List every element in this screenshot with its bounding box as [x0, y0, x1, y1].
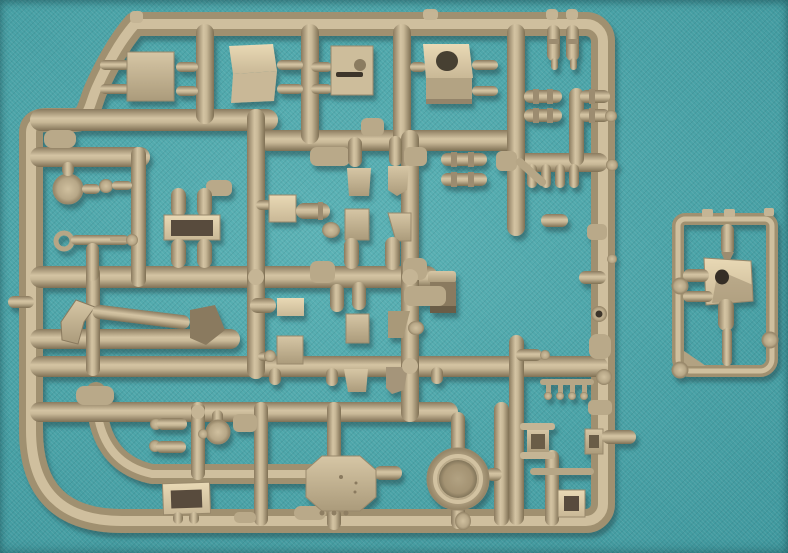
peg [277, 60, 303, 70]
open-box-interior [564, 496, 579, 511]
bullet-tip [570, 58, 577, 70]
t-bracket-slot [531, 434, 545, 449]
bar-nub [423, 9, 438, 20]
pill-part [389, 136, 402, 166]
octagon-dot [355, 482, 358, 485]
pod-part [322, 222, 340, 238]
gate-tab [404, 286, 446, 306]
pill-part [171, 188, 186, 217]
rail-knob [605, 110, 617, 122]
gate-tab [76, 386, 114, 405]
peg [472, 86, 498, 96]
pod-capsule [579, 271, 606, 284]
peg [62, 162, 74, 176]
small-sprue [672, 208, 778, 378]
gate-tab [310, 147, 350, 166]
small-bullet [569, 164, 579, 188]
gate-tab [361, 118, 384, 136]
ball-part [264, 350, 276, 362]
rect-plate [345, 209, 369, 240]
pill-part [197, 239, 212, 268]
end-cap [672, 362, 688, 378]
peg [269, 368, 281, 385]
peg [472, 60, 498, 70]
boss [402, 269, 418, 285]
bullet-capsule [250, 298, 276, 313]
pill-part [385, 237, 400, 270]
bullet-capsule [296, 203, 330, 219]
slot-plate [331, 46, 373, 95]
peg-ball [516, 349, 542, 361]
peg [431, 367, 443, 384]
hole-plate-hole [436, 51, 458, 71]
gate-tab [587, 224, 607, 240]
barrel [722, 328, 732, 366]
ball-part [99, 179, 113, 193]
octagon-stud [332, 511, 337, 516]
bent-plate-bottom [231, 71, 277, 103]
mushroom-cap [568, 392, 576, 400]
pill-part [344, 238, 359, 269]
octagon-plate [306, 456, 376, 511]
rail-ball [596, 369, 612, 385]
square-plate-2 [269, 195, 296, 222]
bar-nub [724, 209, 735, 217]
cyl-collar [533, 108, 539, 123]
boss [191, 405, 205, 419]
peg [176, 86, 198, 96]
diagonal-tube [92, 304, 191, 330]
t-bracket-flange [520, 423, 555, 430]
ball-part [540, 350, 550, 360]
runner-h1 [30, 109, 278, 131]
square-plate-1 [127, 52, 174, 101]
peg [311, 62, 332, 72]
disc-part [53, 174, 83, 204]
peg [173, 512, 183, 524]
runner-vc [393, 24, 411, 144]
runner-va [196, 24, 214, 124]
runner-v-right-low [509, 335, 524, 525]
bullet-collar [567, 39, 578, 44]
hole-plate-flap-edge [426, 99, 472, 104]
octagon-stud [320, 511, 325, 516]
pill-part [197, 188, 212, 217]
runner-vi2 [86, 266, 100, 376]
peg [326, 368, 338, 386]
peg [157, 418, 187, 430]
runner-vi [131, 147, 146, 287]
open-box-interior [171, 489, 203, 508]
ring-part [56, 233, 72, 249]
cyl-collar [533, 89, 539, 104]
bracket-shadow [430, 306, 456, 313]
rail-knob [607, 254, 617, 264]
runner-vl [327, 402, 341, 462]
corner-wedge [684, 351, 706, 366]
end-cap [762, 332, 778, 348]
gate-tab [404, 147, 427, 166]
side-stub [683, 269, 709, 282]
boss [248, 269, 264, 285]
thin-rod [530, 468, 594, 475]
trapezoid-part [388, 213, 411, 241]
mushroom-cap [580, 392, 588, 400]
bullet-tip [551, 58, 558, 70]
open-box-interior [171, 220, 213, 236]
hatch-ring-recess [439, 460, 477, 498]
gate-tab [496, 151, 517, 171]
spade-blade [347, 168, 371, 196]
square-plate-4 [346, 314, 369, 343]
pod-capsule [541, 214, 568, 227]
octagon-dot [354, 491, 357, 494]
gate-tab [310, 261, 335, 283]
cyl-collar [589, 108, 595, 123]
cyl-collar [589, 89, 595, 104]
octagon-dot [339, 475, 343, 479]
pill-part [171, 239, 186, 268]
peg [82, 184, 100, 194]
bar-nub [764, 208, 774, 216]
rail-stub [8, 296, 34, 308]
pill-part [330, 284, 344, 312]
gate-tab [588, 400, 612, 415]
square-plate-3 [277, 336, 303, 364]
end-cap [672, 278, 688, 294]
peg [100, 60, 130, 70]
cyl-collar [468, 152, 474, 167]
barrel-base [718, 299, 734, 331]
bar-nub [566, 9, 578, 20]
twin-cylinder [524, 109, 562, 122]
ring-knob-hole [596, 311, 603, 318]
bright-plate [277, 298, 304, 316]
twin-cylinder [524, 90, 562, 103]
mantlet-hole [715, 270, 729, 285]
small-bullet [555, 164, 565, 188]
runner-vn [494, 402, 509, 526]
pill-part [348, 137, 362, 167]
runner-oct-link [374, 466, 402, 480]
pill-part [352, 282, 366, 310]
peg [156, 441, 186, 453]
peg [100, 84, 130, 94]
rail-stub [602, 430, 636, 444]
jack-part [441, 153, 487, 166]
peg [176, 62, 198, 72]
t-stem [86, 243, 99, 281]
cyl-collar [468, 172, 474, 187]
bullet-collar [548, 39, 559, 44]
boss [402, 358, 418, 374]
cyl-collar [451, 172, 457, 187]
ball-part [126, 234, 138, 246]
side-stub [683, 291, 713, 302]
octagon-stud [344, 511, 349, 516]
small-bracket-slot [589, 435, 599, 448]
jack-part [441, 173, 487, 186]
runner-vd [507, 24, 525, 236]
bar-nub [702, 209, 713, 217]
gate-tab [234, 512, 256, 523]
bar-nub [546, 9, 558, 20]
rail-knob [606, 159, 618, 171]
peg [311, 84, 332, 94]
cyl-collar [451, 152, 457, 167]
disc-part [206, 420, 230, 444]
bent-plate-top [229, 44, 277, 74]
peg [277, 84, 303, 94]
bar-nub [130, 11, 143, 23]
peg [189, 512, 199, 524]
pod-part [408, 321, 424, 335]
cyl-collar [547, 89, 553, 104]
peg [112, 181, 132, 190]
sprue-photo-canvas [0, 0, 788, 553]
peg [410, 62, 426, 72]
gate-tab [233, 414, 257, 432]
runner-vf [247, 109, 265, 379]
ball-part [198, 429, 208, 439]
t-bracket-flange [520, 452, 555, 459]
mushroom-cap [556, 392, 564, 400]
photo-model-kit-sprue [0, 0, 788, 553]
spade-blade [344, 369, 368, 392]
hanging-stub [721, 224, 734, 255]
main-sprue [8, 9, 636, 530]
cyl-collar [318, 202, 323, 220]
gate-tab [44, 130, 76, 148]
cyl-collar [547, 108, 553, 123]
mushroom-cap [544, 392, 552, 400]
pod-part [455, 512, 471, 530]
gate-tab [589, 334, 611, 359]
bracket-flange [428, 271, 456, 283]
slot-plate-hole [354, 59, 366, 71]
slot-plate-slot [336, 72, 363, 77]
runner-v-br [545, 450, 559, 526]
